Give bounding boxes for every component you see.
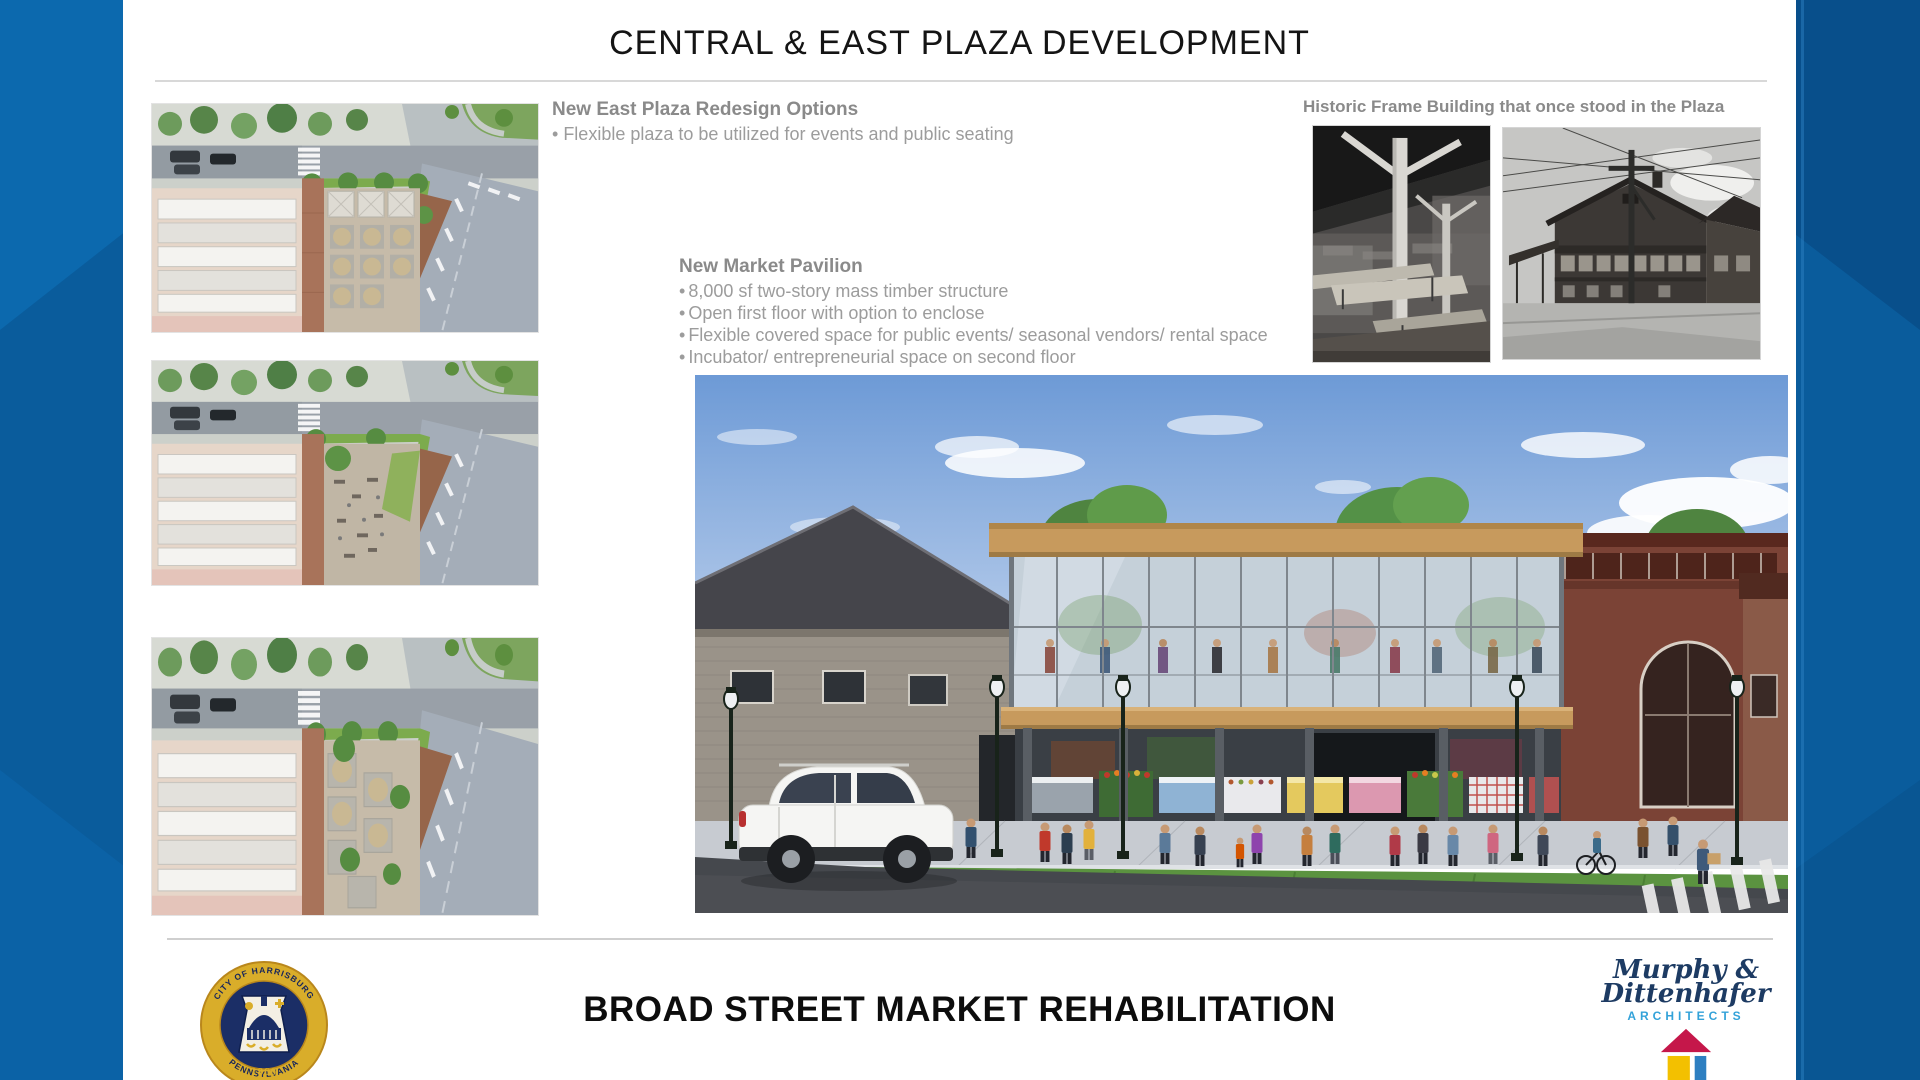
historic-photo-exterior-image [1503,128,1760,359]
site-plan-option-3 [151,637,539,916]
pavilion-bullet: 8,000 sf two-story mass timber structure [679,280,1319,302]
architect-logo: Murphy & Dittenhafer ARCHITECTS [1591,958,1781,1080]
title-divider [155,80,1767,82]
footer-divider [167,938,1773,940]
east-plaza-section: New East Plaza Redesign Options Flexible… [552,98,1112,145]
site-plan-option-2-image [152,361,538,585]
footer-title: BROAD STREET MARKET REHABILITATION [123,990,1796,1030]
screen: CENTRAL & EAST PLAZA DEVELOPMENT [0,0,1920,1080]
site-plan-option-2 [151,360,539,586]
architect-house-icon [1655,1027,1717,1080]
historic-photo-interior-image [1313,126,1490,362]
pavilion-rendering [695,375,1788,913]
architect-name-line3: ARCHITECTS [1591,1009,1781,1023]
presentation-slide: CENTRAL & EAST PLAZA DEVELOPMENT [123,0,1796,1080]
site-plan-option-1-image [152,104,538,332]
historic-photo-interior [1312,125,1491,363]
east-plaza-bullet: Flexible plaza to be utilized for events… [552,123,1112,145]
pavilion-bullet: Open first floor with option to enclose [679,302,1319,324]
slide-title: CENTRAL & EAST PLAZA DEVELOPMENT [123,24,1796,63]
pavilion-bullet-list: 8,000 sf two-story mass timber structure… [679,280,1319,368]
pavilion-rendering-image [695,375,1788,913]
pavilion-heading: New Market Pavilion [679,255,1319,278]
site-plan-option-3-image [152,638,538,915]
east-plaza-heading: New East Plaza Redesign Options [552,98,1112,121]
historic-heading: Historic Frame Building that once stood … [1303,97,1773,117]
east-plaza-bullet-list: Flexible plaza to be utilized for events… [552,123,1112,145]
pavilion-bullet: Flexible covered space for public events… [679,324,1319,346]
historic-photo-exterior [1502,127,1761,360]
pavilion-section: New Market Pavilion 8,000 sf two-story m… [679,255,1319,368]
architect-name-line2: Dittenhafer [1591,982,1781,1006]
site-plan-option-1 [151,103,539,333]
pavilion-bullet: Incubator/ entrepreneurial space on seco… [679,346,1319,368]
seal-year-text: 1860 [251,1066,277,1078]
